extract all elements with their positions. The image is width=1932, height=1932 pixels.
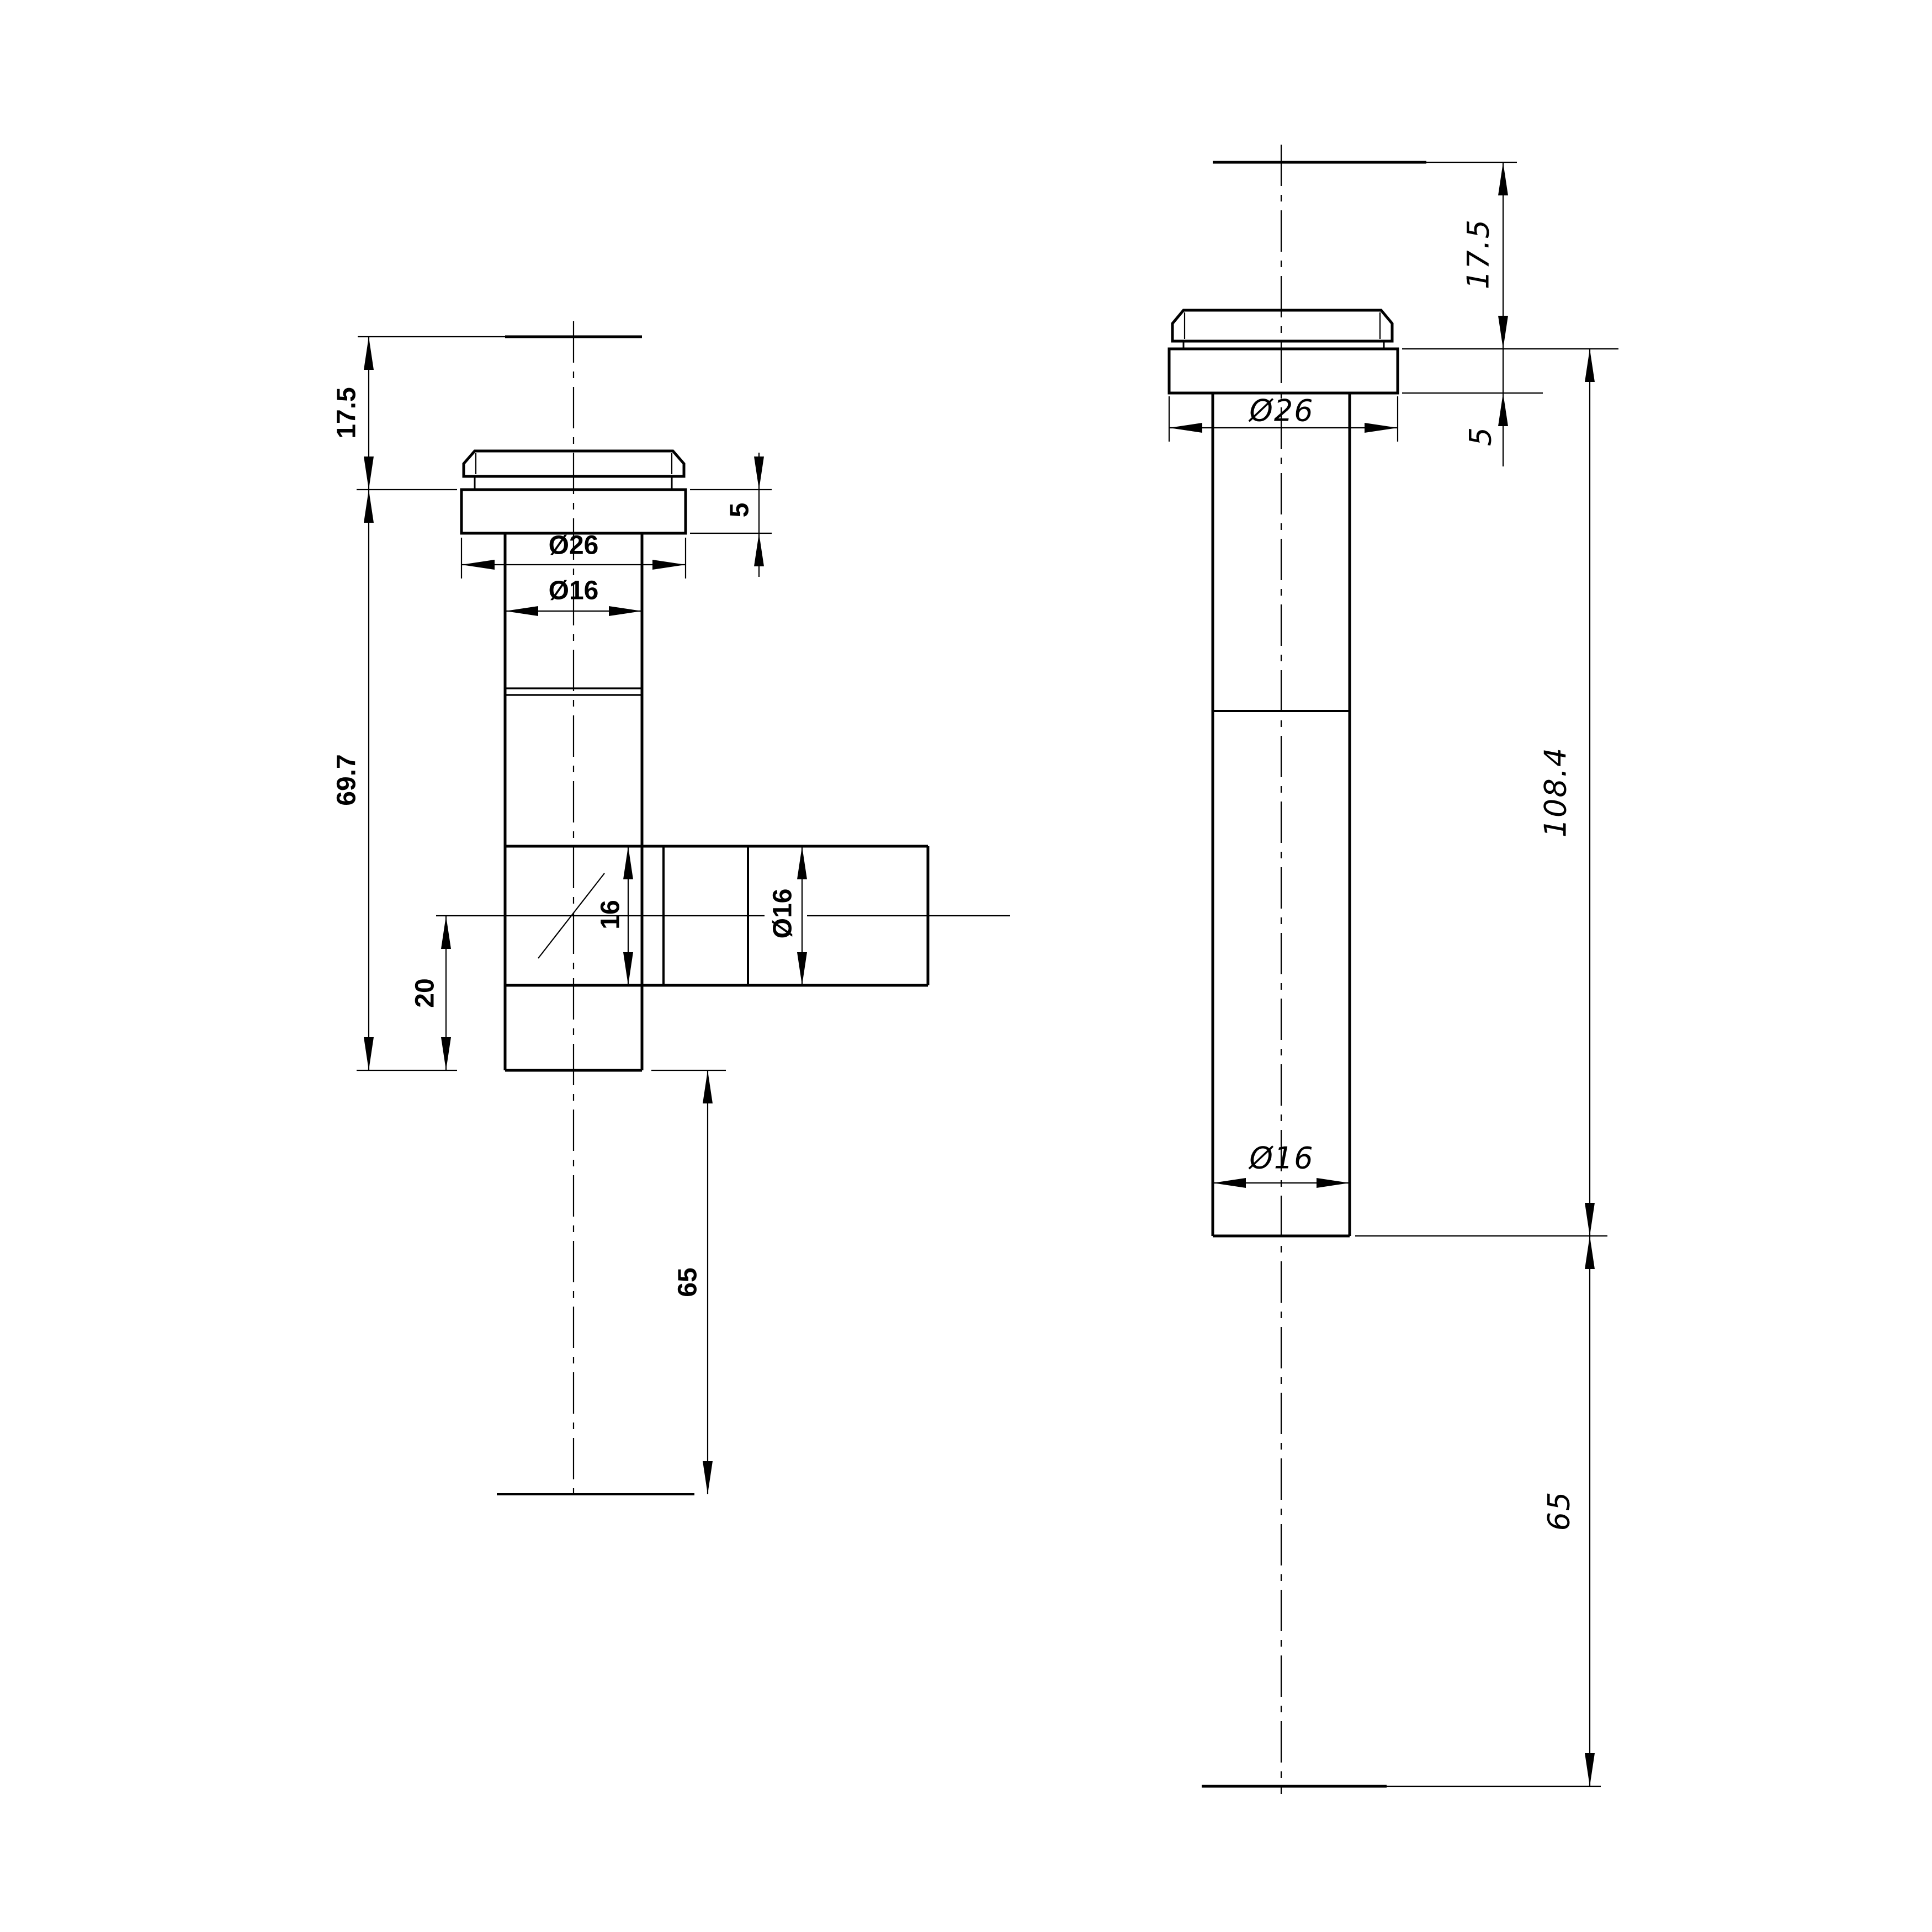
right-view-flange-outline bbox=[1169, 349, 1398, 393]
left-view-arrowhead-down bbox=[623, 952, 633, 985]
left-view-dim-label-16: 16 bbox=[596, 900, 625, 929]
right-view-arrowhead-down bbox=[1498, 316, 1508, 349]
right-view-arrowhead-up bbox=[1498, 162, 1508, 195]
right-view-arrowhead-up bbox=[1585, 1236, 1595, 1269]
left-view-arrowhead-up bbox=[364, 490, 374, 523]
left-view-arrowhead-left bbox=[461, 560, 495, 570]
right-view-cap-outline bbox=[1172, 310, 1392, 341]
left-view-arrowhead-down bbox=[797, 952, 807, 985]
right-view-arrowhead-up bbox=[1498, 393, 1508, 426]
left-view-arrowhead-up bbox=[441, 916, 451, 949]
right-view-dim-label-dia16: Ø16 bbox=[1248, 1141, 1314, 1176]
left-view-arrowhead-up bbox=[364, 337, 374, 370]
left-view-arrowhead-down bbox=[441, 1037, 451, 1070]
left-view-dim-label-5: 5 bbox=[725, 503, 755, 518]
right-view-arrowhead-right bbox=[1317, 1178, 1350, 1188]
right-view-dim-label-5: 5 bbox=[1463, 426, 1498, 446]
left-view-dim-label-dia26: Ø26 bbox=[549, 531, 599, 560]
left-view-arrowhead-up bbox=[754, 533, 764, 566]
right-view-dim-label-dia26: Ø26 bbox=[1248, 394, 1314, 428]
technical-drawing-canvas: 17.55Ø26Ø1669.716Ø16206517.55Ø26108.4Ø16… bbox=[0, 0, 1932, 1932]
left-view-arrowhead-right bbox=[609, 606, 642, 616]
left-view-arrowhead-down bbox=[364, 457, 374, 490]
left-view-dim-label-17-5: 17.5 bbox=[332, 387, 362, 438]
right-view-dim-label-17-5: 17.5 bbox=[1461, 219, 1496, 289]
right-view-arrowhead-left bbox=[1169, 423, 1202, 433]
left-view-arrowhead-up bbox=[623, 846, 633, 879]
left-view-arrowhead-right bbox=[652, 560, 686, 570]
left-view-arrowhead-up bbox=[797, 846, 807, 879]
left-view-dim-label-dia16-branch: Ø16 bbox=[768, 889, 798, 939]
right-view-arrowhead-up bbox=[1585, 349, 1595, 382]
right-view-dim-label-65: 65 bbox=[1542, 1491, 1577, 1531]
left-view-dim-label-69-7: 69.7 bbox=[332, 754, 362, 805]
left-view-dim-label-65: 65 bbox=[673, 1267, 703, 1297]
right-view-arrowhead-down bbox=[1585, 1753, 1595, 1786]
left-view-arrowhead-down bbox=[703, 1461, 713, 1494]
right-view-arrowhead-left bbox=[1213, 1178, 1246, 1188]
left-view-arrowhead-up bbox=[703, 1070, 713, 1103]
left-view-arrowhead-left bbox=[505, 606, 538, 616]
right-view-arrowhead-down bbox=[1585, 1203, 1595, 1236]
right-view-arrowhead-right bbox=[1365, 423, 1398, 433]
drawing-page: 17.55Ø26Ø1669.716Ø16206517.55Ø26108.4Ø16… bbox=[0, 0, 1932, 1932]
right-view-dim-label-108-4: 108.4 bbox=[1538, 747, 1573, 838]
left-view-arrowhead-down bbox=[754, 457, 764, 490]
left-view-dim-label-dia16-tube: Ø16 bbox=[549, 576, 599, 606]
left-view-arrowhead-down bbox=[364, 1037, 374, 1070]
left-view-dim-label-20: 20 bbox=[411, 978, 440, 1007]
